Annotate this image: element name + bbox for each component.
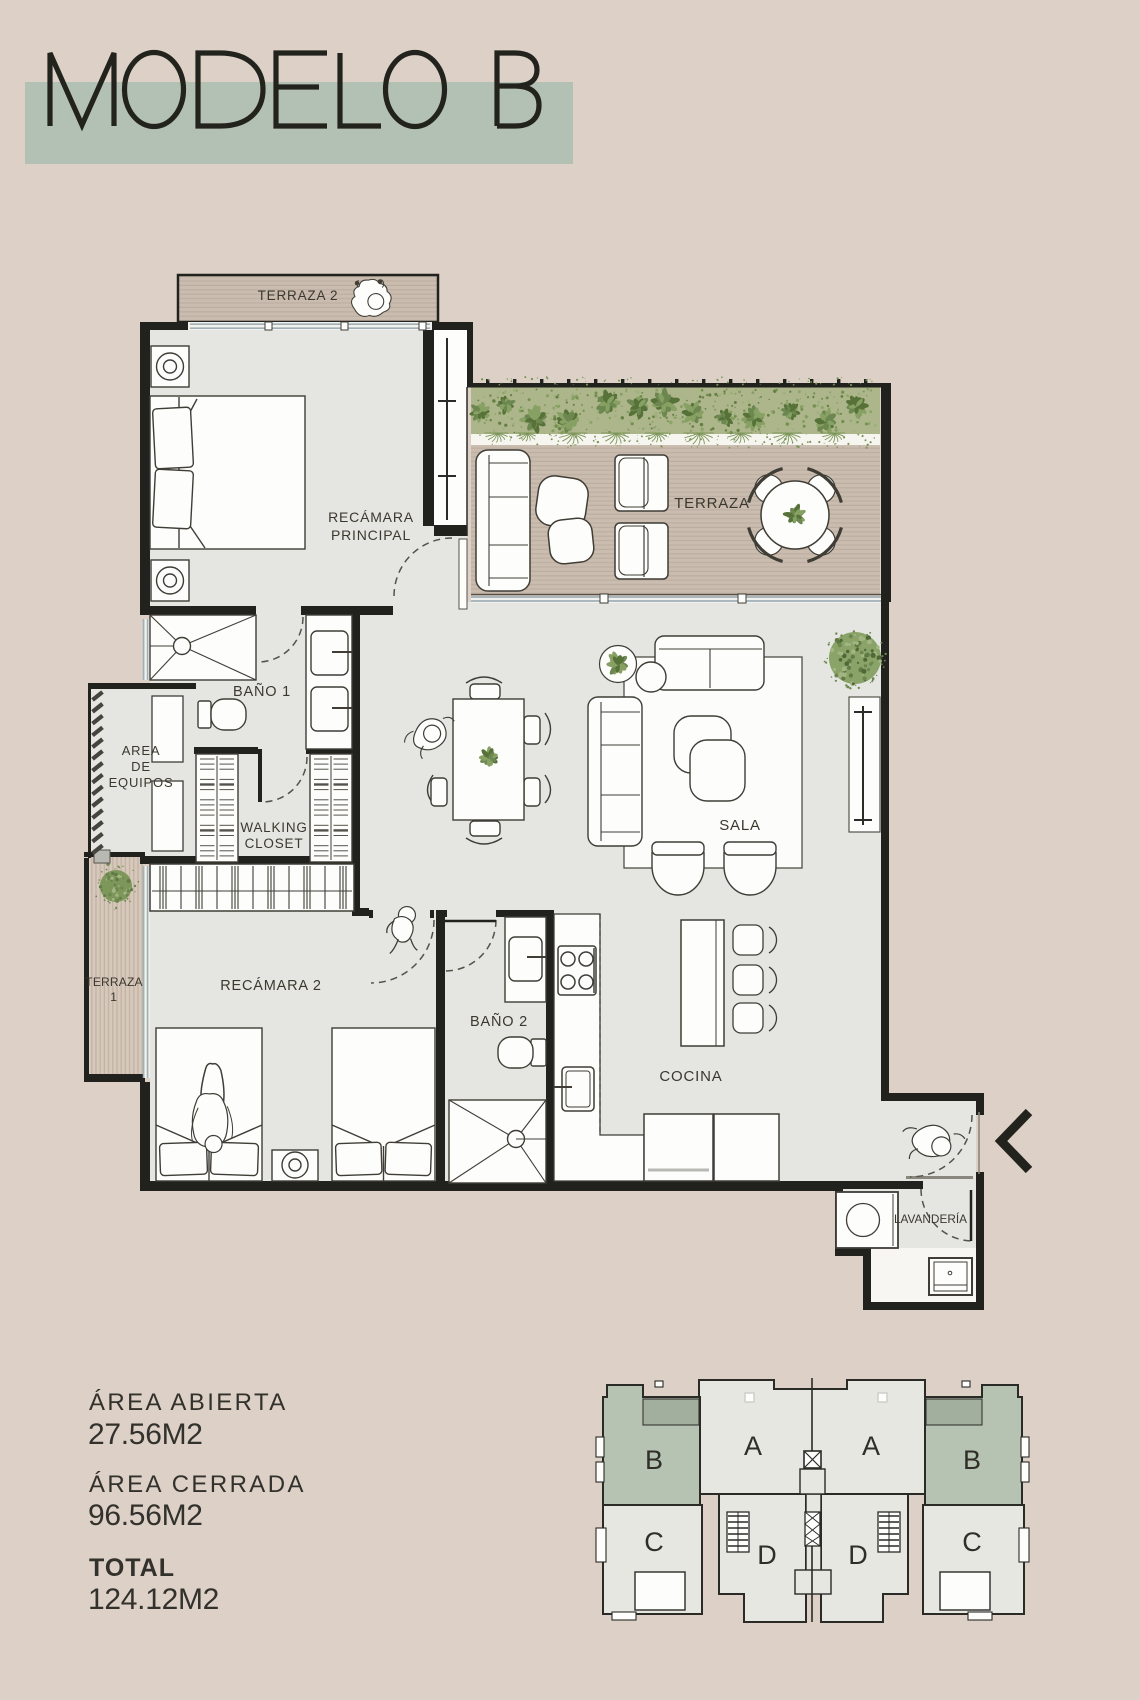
svg-text:DE: DE	[131, 759, 151, 774]
svg-text:D: D	[757, 1540, 777, 1570]
svg-text:AREA: AREA	[122, 743, 161, 758]
svg-text:TERRAZA: TERRAZA	[674, 495, 750, 512]
svg-text:TERRAZA 2: TERRAZA 2	[258, 288, 339, 303]
svg-text:C: C	[644, 1527, 664, 1557]
svg-text:PRINCIPAL: PRINCIPAL	[331, 527, 411, 543]
svg-text:1: 1	[110, 990, 117, 1004]
svg-text:96.56M2: 96.56M2	[88, 1499, 203, 1532]
svg-text:SALA: SALA	[719, 817, 761, 834]
svg-text:COCINA: COCINA	[659, 1068, 722, 1085]
svg-text:LAVANDERÍA: LAVANDERÍA	[894, 1212, 967, 1226]
svg-text:A: A	[862, 1431, 880, 1461]
svg-text:TOTAL: TOTAL	[89, 1554, 175, 1582]
svg-text:ÁREA CERRADA: ÁREA CERRADA	[89, 1471, 306, 1498]
svg-text:BAÑO 1: BAÑO 1	[233, 683, 291, 700]
svg-text:C: C	[962, 1527, 982, 1557]
svg-text:B: B	[645, 1445, 663, 1475]
svg-text:A: A	[744, 1431, 762, 1461]
svg-text:B: B	[963, 1445, 981, 1475]
svg-text:WALKING: WALKING	[240, 820, 307, 835]
svg-text:ÁREA ABIERTA: ÁREA ABIERTA	[89, 1389, 288, 1416]
svg-text:BAÑO 2: BAÑO 2	[470, 1013, 528, 1030]
svg-text:CLOSET: CLOSET	[245, 836, 304, 851]
svg-text:RECÁMARA: RECÁMARA	[328, 509, 414, 525]
svg-text:EQUIPOS: EQUIPOS	[109, 775, 174, 790]
svg-text:TERRAZA: TERRAZA	[85, 975, 142, 989]
svg-text:27.56M2: 27.56M2	[88, 1418, 203, 1451]
svg-text:RECÁMARA 2: RECÁMARA 2	[220, 977, 321, 994]
svg-text:D: D	[848, 1540, 868, 1570]
svg-text:124.12M2: 124.12M2	[88, 1583, 219, 1616]
